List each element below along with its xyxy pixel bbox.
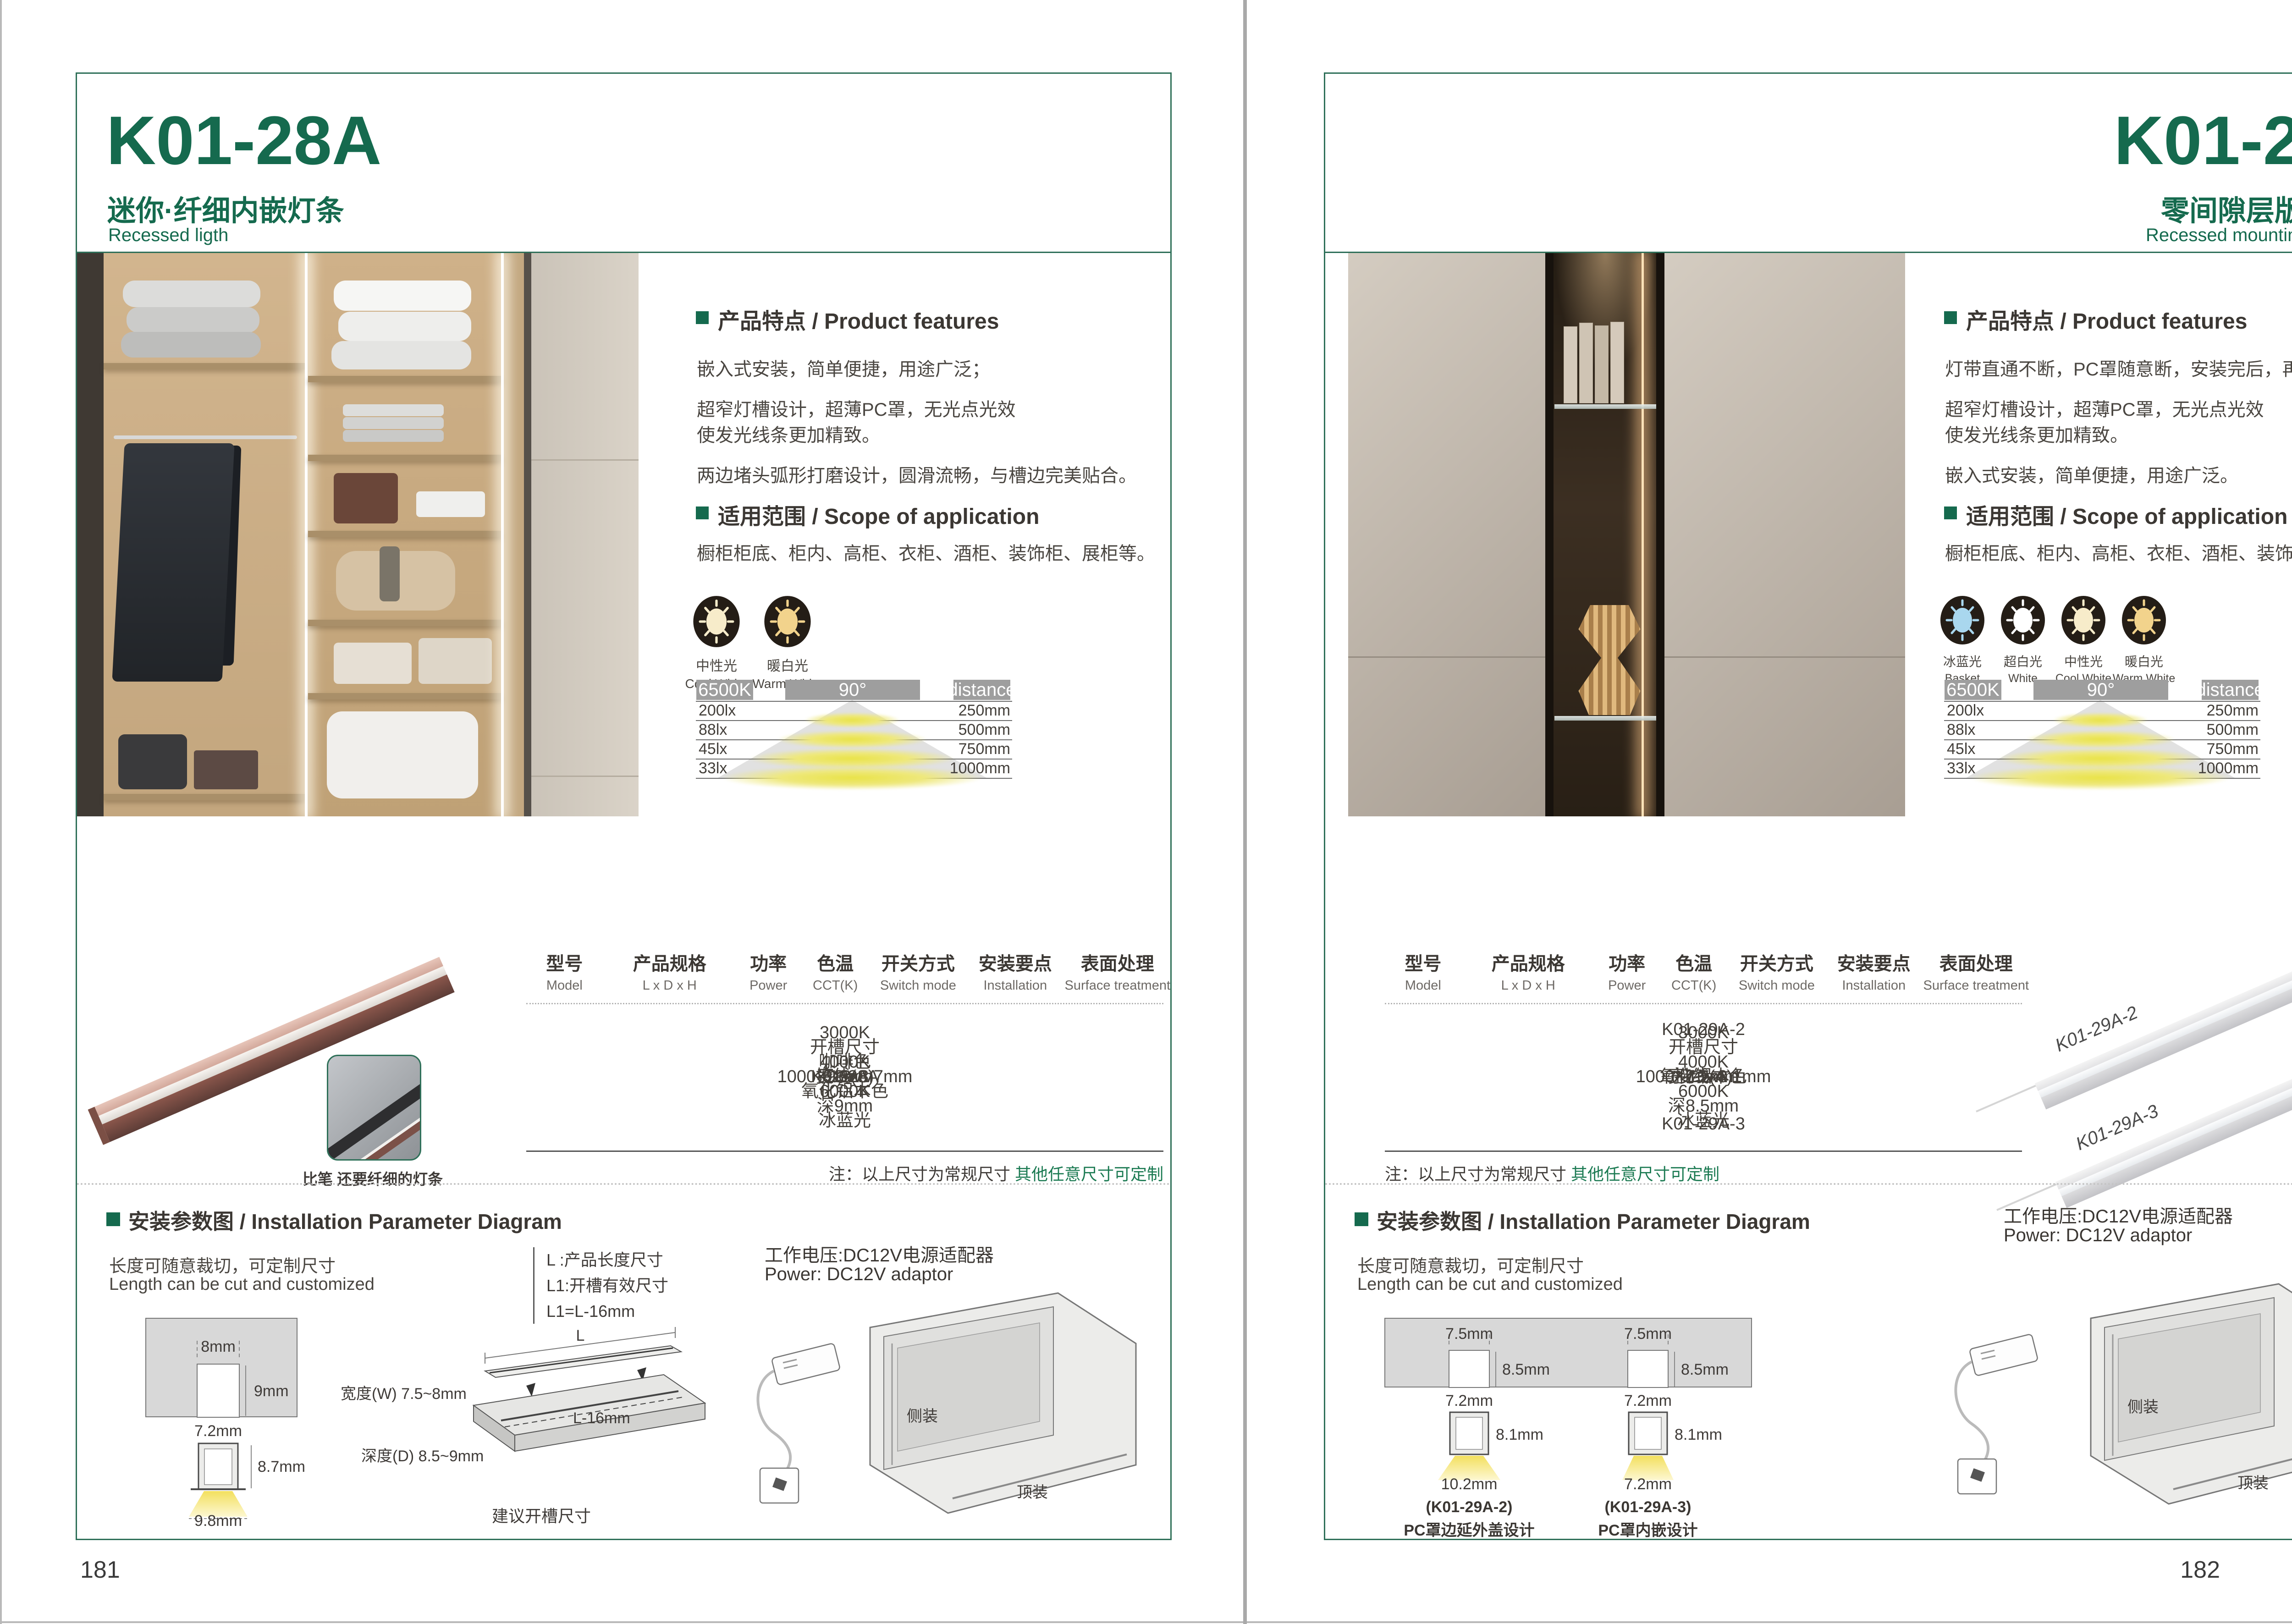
col-switch: 开关方式 Switch mode 接线(A) (871, 952, 966, 995)
page-subtitle-cn: 迷你·纤细内嵌灯条 (107, 187, 344, 229)
power-label-en: Power: DC12V adaptor (2004, 1225, 2192, 1246)
scope-title: 适用范围 / Scope of application (1966, 498, 2287, 530)
satchel (334, 473, 398, 523)
shelf (308, 620, 502, 626)
th-cn: 产品规格 (1492, 952, 1565, 976)
top-mount-label: 顶装 (2237, 1475, 2269, 1492)
page-subtitle-en: Recessed ligth (108, 225, 228, 246)
cell-surface: 氧化铝本色 (1660, 1062, 1747, 1091)
cross-section-diagram: 8mm 9mm 7.2mm 8.7mm 9.8mm (137, 1311, 393, 1527)
power-label-cn: 工作电压:DC12V电源适配器 (2004, 1201, 2233, 1228)
sun-icon (1939, 595, 1985, 645)
product-strip-2 (2055, 1029, 2292, 1208)
feature-line: 使发光线条更加精致。 (1945, 420, 2128, 447)
dim-slot-depth: 8.5mm (1502, 1361, 1550, 1378)
distance-value: 1000mm (2167, 760, 2259, 777)
cut-note-cn: 长度可随意裁切，可定制尺寸 (109, 1252, 336, 1277)
shelf (104, 794, 305, 800)
icon-label-cn: 中性光 (696, 655, 737, 675)
dim-profile-width: 7.2mm (1445, 1392, 1493, 1409)
spread-gutter (1243, 0, 1247, 1624)
double-cross-section-diagram: 7.5mm 7.5mm 8.5mm 8.5mm 7.2mm 7.2mm 8.1m… (1380, 1307, 1802, 1490)
dim-profile-height: 8.7mm (258, 1458, 305, 1475)
table-header-divider (1385, 1003, 2022, 1004)
catalog-page-left: K01-28A 迷你·纤细内嵌灯条 Recessed ligth (76, 72, 1172, 1540)
cct-icon-cool-white: 中性光 Cool White (2051, 595, 2116, 685)
cct-icon-warm-white: 暖白光 Warm White (2112, 595, 2176, 685)
section-bullet (1944, 311, 1957, 324)
product-photo-wardrobe (77, 253, 639, 816)
beam-angle-bar: 90° (785, 680, 920, 700)
table-bottom-rule (1385, 1151, 2022, 1152)
th-cn: 安装要点 (979, 952, 1052, 976)
pillow (331, 341, 471, 369)
features-title: 产品特点 / Product features (1966, 303, 2247, 335)
distance-value: 250mm (919, 702, 1010, 720)
panel-seam (1664, 656, 1905, 658)
th-cn: 表面处理 (1081, 952, 1154, 976)
book (1564, 326, 1577, 403)
bedding (327, 711, 478, 798)
dim-profile-height: 8.1mm (1496, 1426, 1543, 1443)
folded-linen (343, 430, 444, 442)
lux-value: 200lx (1947, 702, 1984, 720)
dim-beam-width: 7.2mm (1624, 1475, 1672, 1490)
scan-edge-left (0, 0, 2, 1624)
page-title: K01-29A (2114, 106, 2292, 175)
table-bottom-rule (526, 1151, 1163, 1152)
wall-panel-left (1348, 253, 1545, 816)
spec-table-headers: 型号 Model K01-29A-2 K01-29A-3 产品规格 L x D … (1385, 952, 2022, 995)
section-bullet (106, 1212, 120, 1226)
lux-value: 200lx (699, 702, 736, 720)
th-en: Switch mode (1739, 976, 1815, 995)
distance-value: 750mm (919, 740, 1010, 758)
sun-icon (2121, 595, 2167, 645)
board-caption: 建议开槽尺寸 (492, 1503, 591, 1527)
dim-slot-width: 7.5mm (1624, 1325, 1672, 1343)
cct-icon-ice-blue: 冰蓝光 Basket (1930, 595, 1994, 685)
folded-stack (334, 643, 412, 684)
lux-value: 45lx (1947, 740, 1975, 758)
lux-value: 33lx (699, 760, 727, 777)
variant-model: (K01-29A-2) (1414, 1498, 1524, 1516)
product-photo-display-cabinet (1348, 253, 1905, 816)
side-mount-label: 侧装 (2127, 1398, 2159, 1416)
feature-line: 嵌入式安装，简单便捷，用途广泛； (697, 354, 990, 381)
distance-bar: distance (2202, 680, 2259, 700)
col-cct: 色温 CCT(K) 3000K 4000K 6000K 冰蓝光 (800, 952, 871, 995)
sliding-door-edge (524, 253, 531, 816)
feature-line: 灯带直通不断，PC罩随意断，安装完后，再盖灯罩； (1945, 354, 2292, 381)
spec-table-headers: 型号 Model K01-28A 产品规格 L x D x H 1000×9.8… (526, 952, 1163, 995)
hanging-suit (112, 443, 234, 682)
th-cn: 色温 (817, 952, 854, 976)
feature-line: 两边堵头弧形打磨设计，圆滑流畅，与槽边完美贴合。 (697, 461, 1137, 487)
cell-surface: 咖啡色 氧化铝本色 (526, 1003, 1163, 1151)
pen-image (327, 1073, 421, 1161)
th-en: CCT(K) (813, 976, 858, 995)
feature-line: 嵌入式安装，简单便捷，用途广泛。 (1945, 461, 2238, 487)
dim-beam-width: 9.8mm (194, 1512, 242, 1527)
section-bullet (696, 311, 709, 324)
light-pool (804, 712, 900, 728)
col-install: 安装要点 Installation 开槽尺寸 宽7.5mm 深8.5mm (1824, 952, 1923, 995)
panel-seam (1348, 656, 1545, 658)
icon-label-cn: 暖白光 (2125, 652, 2163, 670)
top-mount-label: 顶装 (1017, 1484, 1048, 1501)
shelf (308, 693, 502, 699)
th-cn: 功率 (1609, 952, 1645, 976)
duffel-strap (380, 546, 400, 601)
power-label-en: Power: DC12V adaptor (765, 1264, 953, 1285)
cct-icon-white: 超白光 White (1991, 595, 2055, 685)
pillow (334, 281, 471, 311)
scope-text: 橱柜柜底、柜内、高柜、衣柜、酒柜、装饰柜、展柜等。 (697, 539, 1155, 565)
adaptor-sketch (1939, 1330, 2045, 1495)
th-en: Model (1405, 976, 1441, 995)
section-bullet (1355, 1212, 1368, 1226)
col-power: 功率 Power 10w (737, 952, 800, 995)
install-title: 安装参数图 / Installation Parameter Diagram (128, 1205, 562, 1235)
door-seam (531, 776, 639, 777)
th-cn: 型号 (546, 952, 583, 976)
dim-slot-depth: 9mm (254, 1382, 289, 1400)
section-bullet (696, 506, 709, 519)
light-pool (2052, 712, 2149, 728)
features-title: 产品特点 / Product features (718, 303, 999, 335)
dim-slot-width: 7.5mm (1445, 1325, 1493, 1343)
scope-text: 橱柜柜底、柜内、高柜、衣柜、酒柜、装饰柜、展柜等。 (1945, 539, 2292, 565)
led-strip-glow (305, 253, 308, 816)
th-en: Power (1608, 976, 1646, 995)
legend-line: L1=L-16mm (546, 1299, 744, 1324)
wall-panel-right (1664, 253, 1905, 816)
cut-note-cn: 长度可随意裁切，可定制尺寸 (1357, 1252, 1584, 1277)
book (1610, 322, 1624, 403)
sun-icon (763, 595, 812, 648)
th-en: Switch mode (880, 976, 956, 995)
th-en: Surface treatment (1065, 976, 1171, 995)
th-cn: 型号 (1405, 952, 1441, 976)
folded-towels (416, 491, 485, 517)
towel-stack (121, 332, 261, 358)
scan-edge-bottom (0, 1621, 2292, 1623)
shelf (308, 376, 502, 382)
catalog-page-right: K01-29A 零间隙层版条形灯 Recessed mounting LED l… (1324, 72, 2292, 1540)
variant-desc: PC罩边延外盖设计 (1373, 1518, 1565, 1540)
distance-value: 250mm (2167, 702, 2259, 720)
cct-bar: 6500K (696, 680, 753, 700)
col-switch: 开关方式 Switch mode 接线(A) (1729, 952, 1825, 995)
page-title: K01-28A (106, 106, 381, 175)
variant-model: (K01-29A-3) (1593, 1498, 1703, 1516)
bag (118, 734, 187, 789)
boxes (194, 750, 258, 789)
section-bullet (1944, 506, 1957, 519)
cut-note-en: Length can be cut and customized (109, 1275, 375, 1294)
dim-profile-width: 7.2mm (1624, 1392, 1672, 1409)
distance-value: 500mm (919, 721, 1010, 739)
table-header-divider (526, 1003, 1163, 1004)
note-regular: 注：以上尺寸为常规尺寸 (1385, 1165, 1571, 1184)
book (1595, 325, 1609, 403)
shelf (104, 363, 305, 369)
legend-line: L1:开槽有效尺寸 (546, 1273, 744, 1299)
dim-L16: L-16mm (573, 1409, 630, 1427)
th-en: L x D x H (643, 976, 697, 995)
lux-value: 88lx (699, 721, 727, 739)
icon-label-cn: 超白光 (2004, 652, 2042, 670)
glass-shelf (1554, 716, 1656, 721)
dim-beam-width: 10.2mm (1441, 1475, 1498, 1490)
icon-label-cn: 暖白光 (767, 655, 808, 675)
niche-frame (1656, 253, 1664, 816)
th-cn: 开关方式 (1740, 952, 1813, 976)
dim-profile-height: 8.1mm (1675, 1426, 1722, 1443)
feature-line: 超窄灯槽设计，超薄PC罩，无光点光效 (697, 395, 1016, 421)
cut-note-en: Length can be cut and customized (1357, 1275, 1623, 1294)
th-cn: 功率 (750, 952, 787, 976)
sun-icon (2000, 595, 2046, 645)
dim-slot-width: 8mm (201, 1338, 236, 1355)
product-strip-1 (2035, 930, 2292, 1110)
distance-value: 500mm (2167, 721, 2259, 739)
section-divider (1325, 1183, 2292, 1185)
light-pool (777, 730, 928, 749)
shelf (308, 455, 502, 461)
lux-value: 45lx (699, 740, 727, 758)
distance-value: 750mm (2167, 740, 2259, 758)
table-note: 注：以上尺寸为常规尺寸 其他任意尺寸可定制 (1385, 1161, 1719, 1185)
pillow (338, 312, 471, 341)
feature-line: 超窄灯槽设计，超薄PC罩，无光点光效 (1945, 395, 2264, 421)
spec-table: 型号 Model K01-29A-2 K01-29A-3 产品规格 L x D … (1385, 952, 2022, 1153)
th-en: CCT(K) (1671, 976, 1716, 995)
col-power: 功率 Power 10w (1595, 952, 1659, 995)
spec-table: 型号 Model K01-28A 产品规格 L x D x H 1000×9.8… (526, 952, 1163, 1153)
dim-slot-depth: 8.5mm (1681, 1361, 1729, 1378)
shelf (308, 531, 502, 537)
side-mount-label: 侧装 (907, 1408, 938, 1425)
th-en: Power (749, 976, 787, 995)
door-seam (531, 459, 639, 461)
legend-line: L :产品长度尺寸 (546, 1247, 744, 1273)
note-highlight: 其他任意尺寸可定制 (1015, 1165, 1163, 1184)
feature-line: 使发光线条更加精致。 (697, 420, 880, 447)
length-legend: L :产品长度尺寸 L1:开槽有效尺寸 L1=L-16mm (533, 1247, 744, 1324)
col-cct: 色温 CCT(K) 3000K 4000K 6000K 冰蓝光 (1659, 952, 1729, 995)
col-model: 型号 Model K01-28A (526, 952, 603, 995)
folded-stack (419, 638, 492, 684)
inset-caption: 比笔 还要纤细的灯条 (283, 1167, 462, 1189)
th-cn: 产品规格 (633, 952, 706, 976)
board-width-label: 宽度(W) 7.5~8mm (341, 1381, 467, 1404)
folded-linen (343, 404, 444, 416)
col-model: 型号 Model K01-29A-2 K01-29A-3 (1385, 952, 1461, 995)
dim-L: L (576, 1327, 585, 1344)
hanging-rod (114, 435, 297, 439)
adaptor-sketch (742, 1339, 847, 1504)
cct-icon-warm-white: 暖白光 Warm White (742, 595, 833, 691)
page-number-left: 181 (80, 1556, 120, 1584)
icon-label-cn: 中性光 (2064, 652, 2103, 670)
th-en: Installation (983, 976, 1047, 995)
sun-icon (2061, 595, 2106, 645)
distance-bar: distance (953, 680, 1010, 700)
book (1579, 323, 1593, 403)
th-en: L x D x H (1501, 976, 1555, 995)
power-label-cn: 工作电压:DC12V电源适配器 (765, 1240, 994, 1267)
icon-label-cn: 冰蓝光 (1943, 652, 1982, 670)
towel-stack (127, 307, 259, 333)
page-number-right: 182 (2180, 1556, 2220, 1584)
note-highlight: 其他任意尺寸可定制 (1571, 1165, 1719, 1184)
th-cn: 安装要点 (1837, 952, 1911, 976)
sun-icon (692, 595, 741, 648)
glass-shelf (1554, 404, 1656, 409)
page-subtitle-en: Recessed mounting LED light (2146, 225, 2292, 246)
towel-stack (123, 281, 260, 307)
cabinet-diagram: 侧装 顶装 (856, 1284, 1150, 1522)
folded-linen (343, 417, 444, 429)
lux-value: 33lx (1947, 760, 1975, 777)
col-install: 安装要点 Installation 开槽尺寸 宽8mm 深9mm (966, 952, 1064, 995)
scope-title: 适用范围 / Scope of application (718, 498, 1039, 530)
col-spec: 产品规格 L x D x H 1000×7.2x8.1mm (1461, 952, 1595, 995)
beam-angle-bar: 90° (2033, 680, 2168, 700)
photo-dark-edge (77, 253, 104, 816)
sliding-door (524, 253, 639, 816)
section-divider (77, 1183, 1170, 1185)
col-spec: 产品规格 L x D x H 1000×9.8x8.7mm (603, 952, 737, 995)
cabinet-diagram: 侧装 顶装 (2077, 1275, 2292, 1513)
th-cn: 开关方式 (882, 952, 955, 976)
col-surface: 表面处理 Surface treatment 咖啡色 氧化铝本色 (1065, 952, 1171, 995)
th-en: Surface treatment (1923, 976, 2029, 995)
note-regular: 注：以上尺寸为常规尺寸 (829, 1165, 1015, 1184)
pen-comparison-inset (327, 1055, 421, 1161)
niche-frame (1545, 253, 1554, 816)
light-pool (2025, 730, 2176, 749)
groove-board-diagram: L L-16mm (457, 1325, 714, 1508)
led-strip-glow (501, 253, 504, 816)
table-note: 注：以上尺寸为常规尺寸 其他任意尺寸可定制 (526, 1161, 1163, 1185)
dim-profile-width: 7.2mm (194, 1422, 242, 1440)
th-en: Installation (1842, 976, 1906, 995)
install-title: 安装参数图 / Installation Parameter Diagram (1377, 1205, 1810, 1235)
lux-value: 88lx (1947, 721, 1975, 739)
led-strip-glow (1642, 253, 1644, 816)
cct-bar: 6500K (1945, 680, 2001, 700)
col-surface: 表面处理 Surface treatment 氧化铝本色 (1923, 952, 2029, 995)
th-cn: 表面处理 (1939, 952, 2013, 976)
variant-desc: PC罩内嵌设计 (1552, 1518, 1744, 1540)
th-en: Model (546, 976, 583, 995)
th-cn: 色温 (1675, 952, 1712, 976)
page-subtitle-cn: 零间隙层版条形灯 (2161, 187, 2292, 229)
distance-value: 1000mm (919, 760, 1010, 777)
